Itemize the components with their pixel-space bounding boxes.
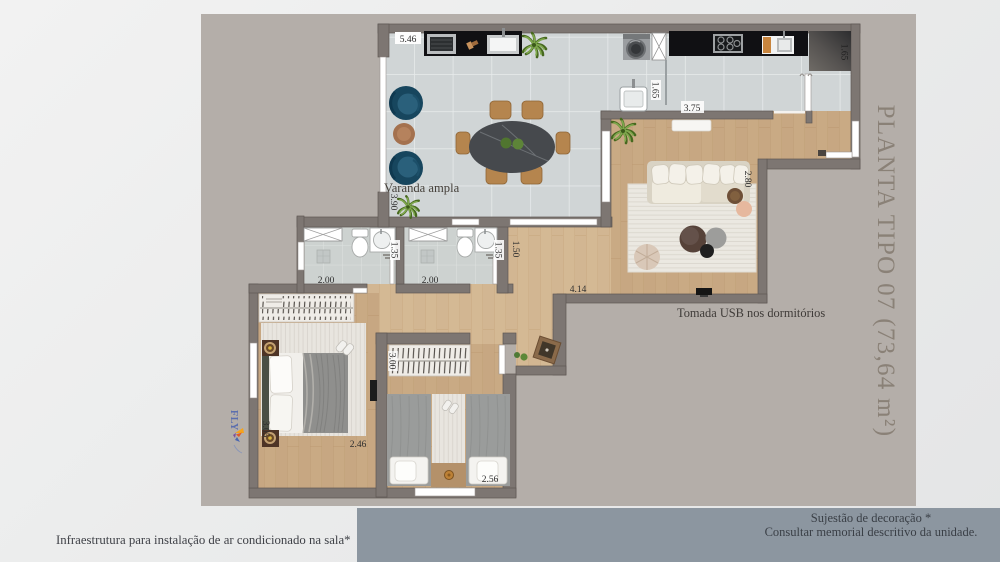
- svg-text:Tomada USB nos dormitórios: Tomada USB nos dormitórios: [677, 306, 825, 320]
- svg-text:4.14: 4.14: [570, 285, 587, 295]
- svg-text:2.56: 2.56: [482, 475, 499, 485]
- svg-text:1.35: 1.35: [493, 242, 503, 259]
- svg-text:PLANTA TIPO 07 (73,64 m²): PLANTA TIPO 07 (73,64 m²): [872, 105, 899, 438]
- svg-text:5.46: 5.46: [400, 35, 417, 45]
- svg-text:2.00: 2.00: [422, 276, 439, 286]
- svg-text:1.50: 1.50: [510, 241, 520, 258]
- svg-text:2.00: 2.00: [318, 276, 335, 286]
- svg-text:1.35: 1.35: [389, 242, 399, 259]
- svg-text:3.05: 3.05: [260, 421, 270, 438]
- svg-text:FLY: FLY: [228, 410, 239, 431]
- svg-text:Consultar memorial descritivo: Consultar memorial descritivo da unidade…: [765, 525, 978, 539]
- svg-text:3.90: 3.90: [388, 194, 398, 211]
- svg-text:Varanda ampla: Varanda ampla: [384, 181, 460, 195]
- svg-text:1.65: 1.65: [650, 82, 660, 99]
- svg-text:Infraestrutura para instalação: Infraestrutura para instalação de ar con…: [56, 533, 351, 547]
- svg-text:Sujestão de decoração *: Sujestão de decoração *: [811, 511, 931, 525]
- svg-text:1.65: 1.65: [839, 44, 849, 61]
- svg-text:2.46: 2.46: [350, 440, 367, 450]
- svg-text:3.00: 3.00: [387, 353, 397, 370]
- svg-text:3.75: 3.75: [684, 104, 701, 114]
- svg-text:2.80: 2.80: [742, 171, 752, 188]
